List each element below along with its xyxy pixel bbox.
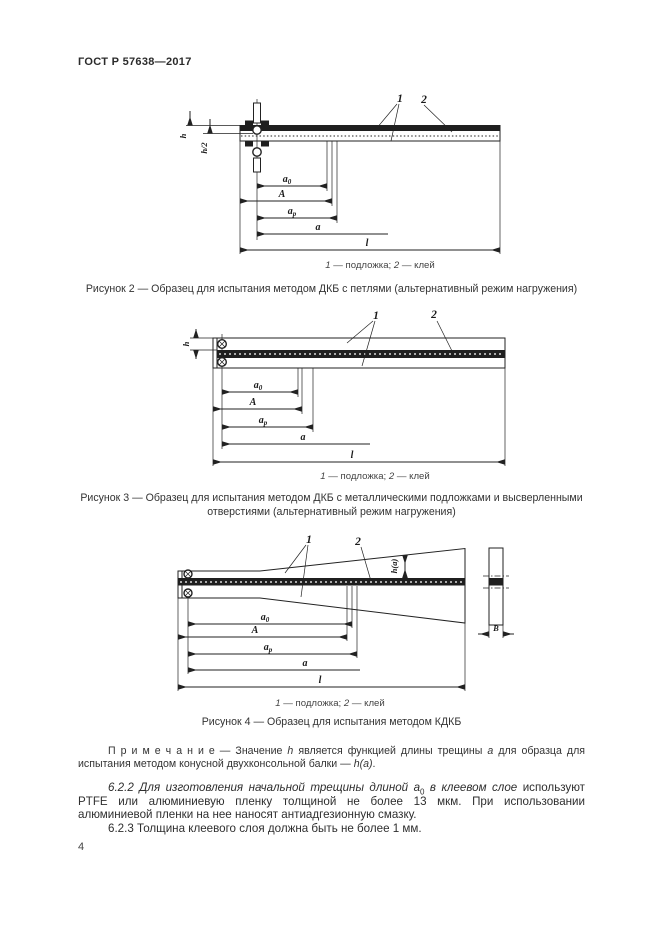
page-number: 4 <box>78 841 84 853</box>
figure-2-caption: Рисунок 2 — Образец для испытания методо… <box>78 283 585 297</box>
fig3-beam <box>213 334 505 372</box>
figure-2-legend: 1 — подложка; 2 — клей <box>180 260 580 271</box>
dim-label-ap: ap <box>288 206 297 218</box>
note-label: П р и м е ч а н и е <box>108 745 215 757</box>
document-page: ГОСТ Р 57638—2017 <box>0 0 661 935</box>
figure-4-caption: Рисунок 4 — Образец для испытания методо… <box>78 716 585 730</box>
callout-1: 1 <box>397 93 403 105</box>
dim-label-a0: a0 <box>283 174 292 186</box>
dim-label-l: l <box>319 675 322 686</box>
dim-label-A: A <box>251 625 259 636</box>
dim-label-ha: h(a) <box>389 559 399 574</box>
standard-number: ГОСТ Р 57638—2017 <box>78 56 192 68</box>
dim-label-a: a <box>316 222 321 233</box>
dim-label-a0: a0 <box>254 380 263 392</box>
fig4-side-view: B <box>478 548 514 638</box>
dim-label-l: l <box>366 238 369 249</box>
figure-2-drawing: h h/2 1 2 a0 A ap a l <box>150 88 570 260</box>
fig3-thickness-dim: h <box>181 329 217 359</box>
clause-6-2-2: 6.2.2 Для изготовления начальной трещины… <box>78 781 585 822</box>
clause-6-2-3: 6.2.3 Толщина клеевого слоя должна быть … <box>78 822 585 836</box>
dim-label-ap: ap <box>264 642 273 654</box>
fig3-dimensions: a0 A ap a l <box>213 368 505 466</box>
figure-3-legend: 1 — подложка; 2 — клей <box>175 471 575 482</box>
figure-4-legend: 1 — подложка; 2 — клей <box>130 698 530 709</box>
dim-label-B: B <box>492 623 499 633</box>
figure-3-drawing: h 1 2 a0 A ap a l <box>150 305 570 473</box>
callout-2: 2 <box>354 536 361 548</box>
dim-label-A: A <box>249 397 257 408</box>
figure-4-drawing: h(a) B 1 2 a0 <box>150 530 570 695</box>
fig2-beam <box>240 126 500 142</box>
figure-3-caption: Рисунок 3 — Образец для испытания методо… <box>78 492 585 519</box>
callout-1: 1 <box>306 534 312 546</box>
dim-label-a: a <box>303 658 308 669</box>
dim-label-l: l <box>351 450 354 461</box>
note-paragraph: П р и м е ч а н и е — Значение h являетс… <box>78 745 585 771</box>
dim-label-h: h <box>181 341 191 346</box>
fig2-dimensions: a0 A ap a l <box>240 141 500 254</box>
dim-label-a0: a0 <box>261 612 270 624</box>
callout-1: 1 <box>373 310 379 322</box>
dim-label-A: A <box>278 189 286 200</box>
callout-2: 2 <box>420 94 427 106</box>
dim-label-a: a <box>301 432 306 443</box>
dim-label-h2: h/2 <box>199 142 209 154</box>
body-text: 6.2.2 Для изготовления начальной трещины… <box>78 781 585 836</box>
dim-label-ap: ap <box>259 415 268 427</box>
callout-2: 2 <box>430 309 437 321</box>
fig4-tapered-beam <box>178 549 465 624</box>
dim-label-h: h <box>178 133 188 138</box>
